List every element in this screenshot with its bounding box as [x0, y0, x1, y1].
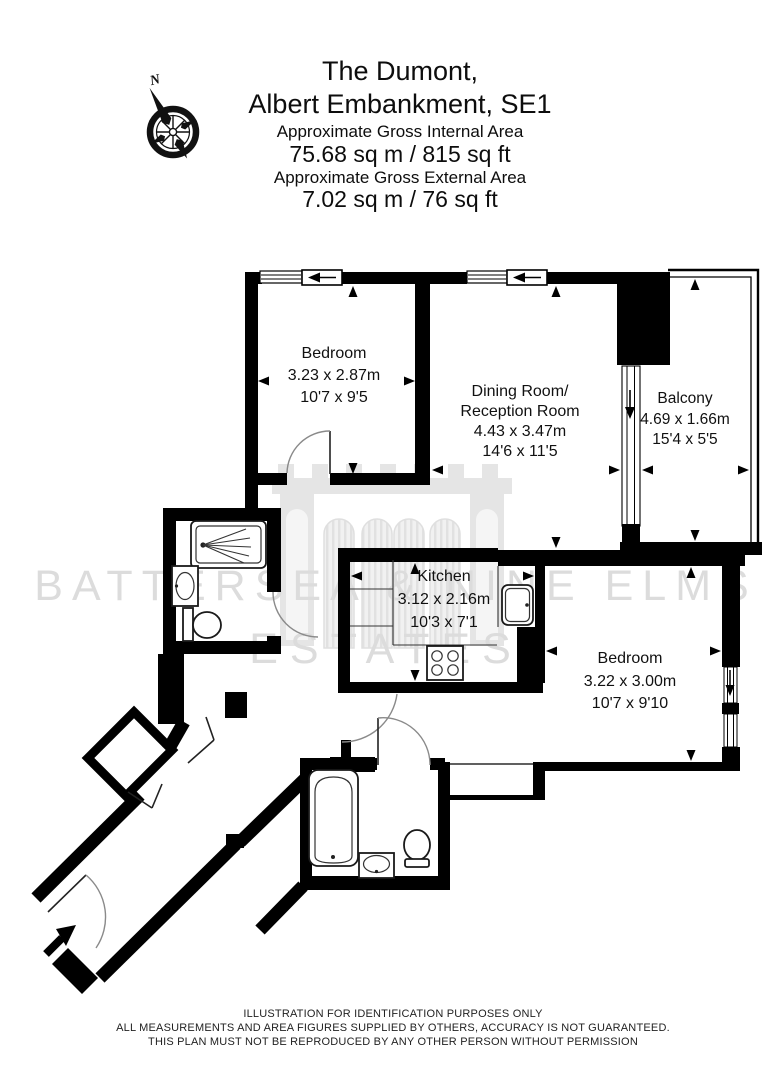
wardrobe [441, 762, 545, 800]
svg-text:3.12 x 2.16m: 3.12 x 2.16m [398, 591, 491, 608]
external-area-value: 7.02 sq m / 76 sq ft [302, 186, 498, 212]
svg-text:4.43 x 3.47m: 4.43 x 3.47m [474, 423, 567, 440]
basin-icon [359, 853, 394, 878]
window-opening-arrow [302, 270, 342, 285]
watermark-text-line1: BATTERSEA & NINE ELMS [34, 562, 757, 610]
toilet-icon [183, 608, 221, 641]
svg-text:Dining Room/: Dining Room/ [472, 383, 569, 400]
room-label-dining: Dining Room/ Reception Room 4.43 x 3.47m… [460, 383, 579, 460]
footer-disclaimer: ILLUSTRATION FOR IDENTIFICATION PURPOSES… [116, 1008, 670, 1048]
svg-text:15'4 x 5'5: 15'4 x 5'5 [652, 431, 717, 448]
toilet-icon [404, 830, 430, 867]
watermark-text-line2: ESTATES [249, 625, 523, 673]
room-label-bedroom2: Bedroom 3.22 x 3.00m 10'7 x 9'10 [584, 650, 677, 712]
floorplan-page: BATTERSEA & NINE ELMS ESTATES N The Dumo… [0, 0, 763, 1080]
svg-text:Balcony: Balcony [657, 390, 712, 407]
svg-text:Bedroom: Bedroom [302, 345, 367, 362]
balcony-glazed-door [622, 366, 640, 526]
disclaimer-line2: ALL MEASUREMENTS AND AREA FIGURES SUPPLI… [116, 1022, 670, 1034]
window [724, 714, 737, 747]
svg-text:3.22 x 3.00m: 3.22 x 3.00m [584, 673, 677, 690]
room-label-balcony: Balcony 4.69 x 1.66m 15'4 x 5'5 [640, 390, 730, 448]
svg-text:10'7 x 9'10: 10'7 x 9'10 [592, 695, 668, 712]
hob-icon [427, 646, 463, 680]
window-opening-arrow [507, 270, 547, 285]
header: The Dumont, Albert Embankment, SE1 Appro… [248, 56, 551, 212]
external-area-label: Approximate Gross External Area [274, 168, 527, 187]
entry-corner-wall [52, 948, 98, 994]
sink-icon [502, 585, 533, 625]
internal-area-label: Approximate Gross Internal Area [277, 122, 524, 141]
svg-text:Bedroom: Bedroom [598, 650, 663, 667]
svg-text:10'3 x 7'1: 10'3 x 7'1 [410, 614, 478, 631]
page-title-line2: Albert Embankment, SE1 [248, 89, 551, 119]
hall-closet [88, 712, 172, 796]
compass-icon: N [127, 72, 209, 170]
disclaimer-line1: ILLUSTRATION FOR IDENTIFICATION PURPOSES… [243, 1008, 543, 1020]
room-label-bedroom1: Bedroom 3.23 x 2.87m 10'7 x 9'5 [288, 345, 381, 406]
window [467, 271, 507, 283]
entrance-arrow [46, 925, 76, 954]
internal-area-value: 75.68 sq m / 815 sq ft [289, 141, 511, 167]
svg-text:14'6 x 11'5: 14'6 x 11'5 [482, 443, 557, 460]
svg-text:Reception Room: Reception Room [460, 403, 579, 420]
disclaimer-line3: THIS PLAN MUST NOT BE REPRODUCED BY ANY … [148, 1036, 638, 1048]
svg-text:4.69 x 1.66m: 4.69 x 1.66m [640, 411, 730, 428]
basin-icon [172, 566, 198, 606]
compass-north-label: N [147, 72, 162, 89]
bathtub-icon [309, 770, 358, 866]
shower-tray-icon [191, 521, 266, 568]
svg-text:3.23 x 2.87m: 3.23 x 2.87m [288, 367, 381, 384]
page-title-line1: The Dumont, [322, 56, 478, 86]
window [260, 271, 302, 283]
svg-text:10'7 x 9'5: 10'7 x 9'5 [300, 389, 368, 406]
svg-text:Kitchen: Kitchen [417, 568, 470, 585]
